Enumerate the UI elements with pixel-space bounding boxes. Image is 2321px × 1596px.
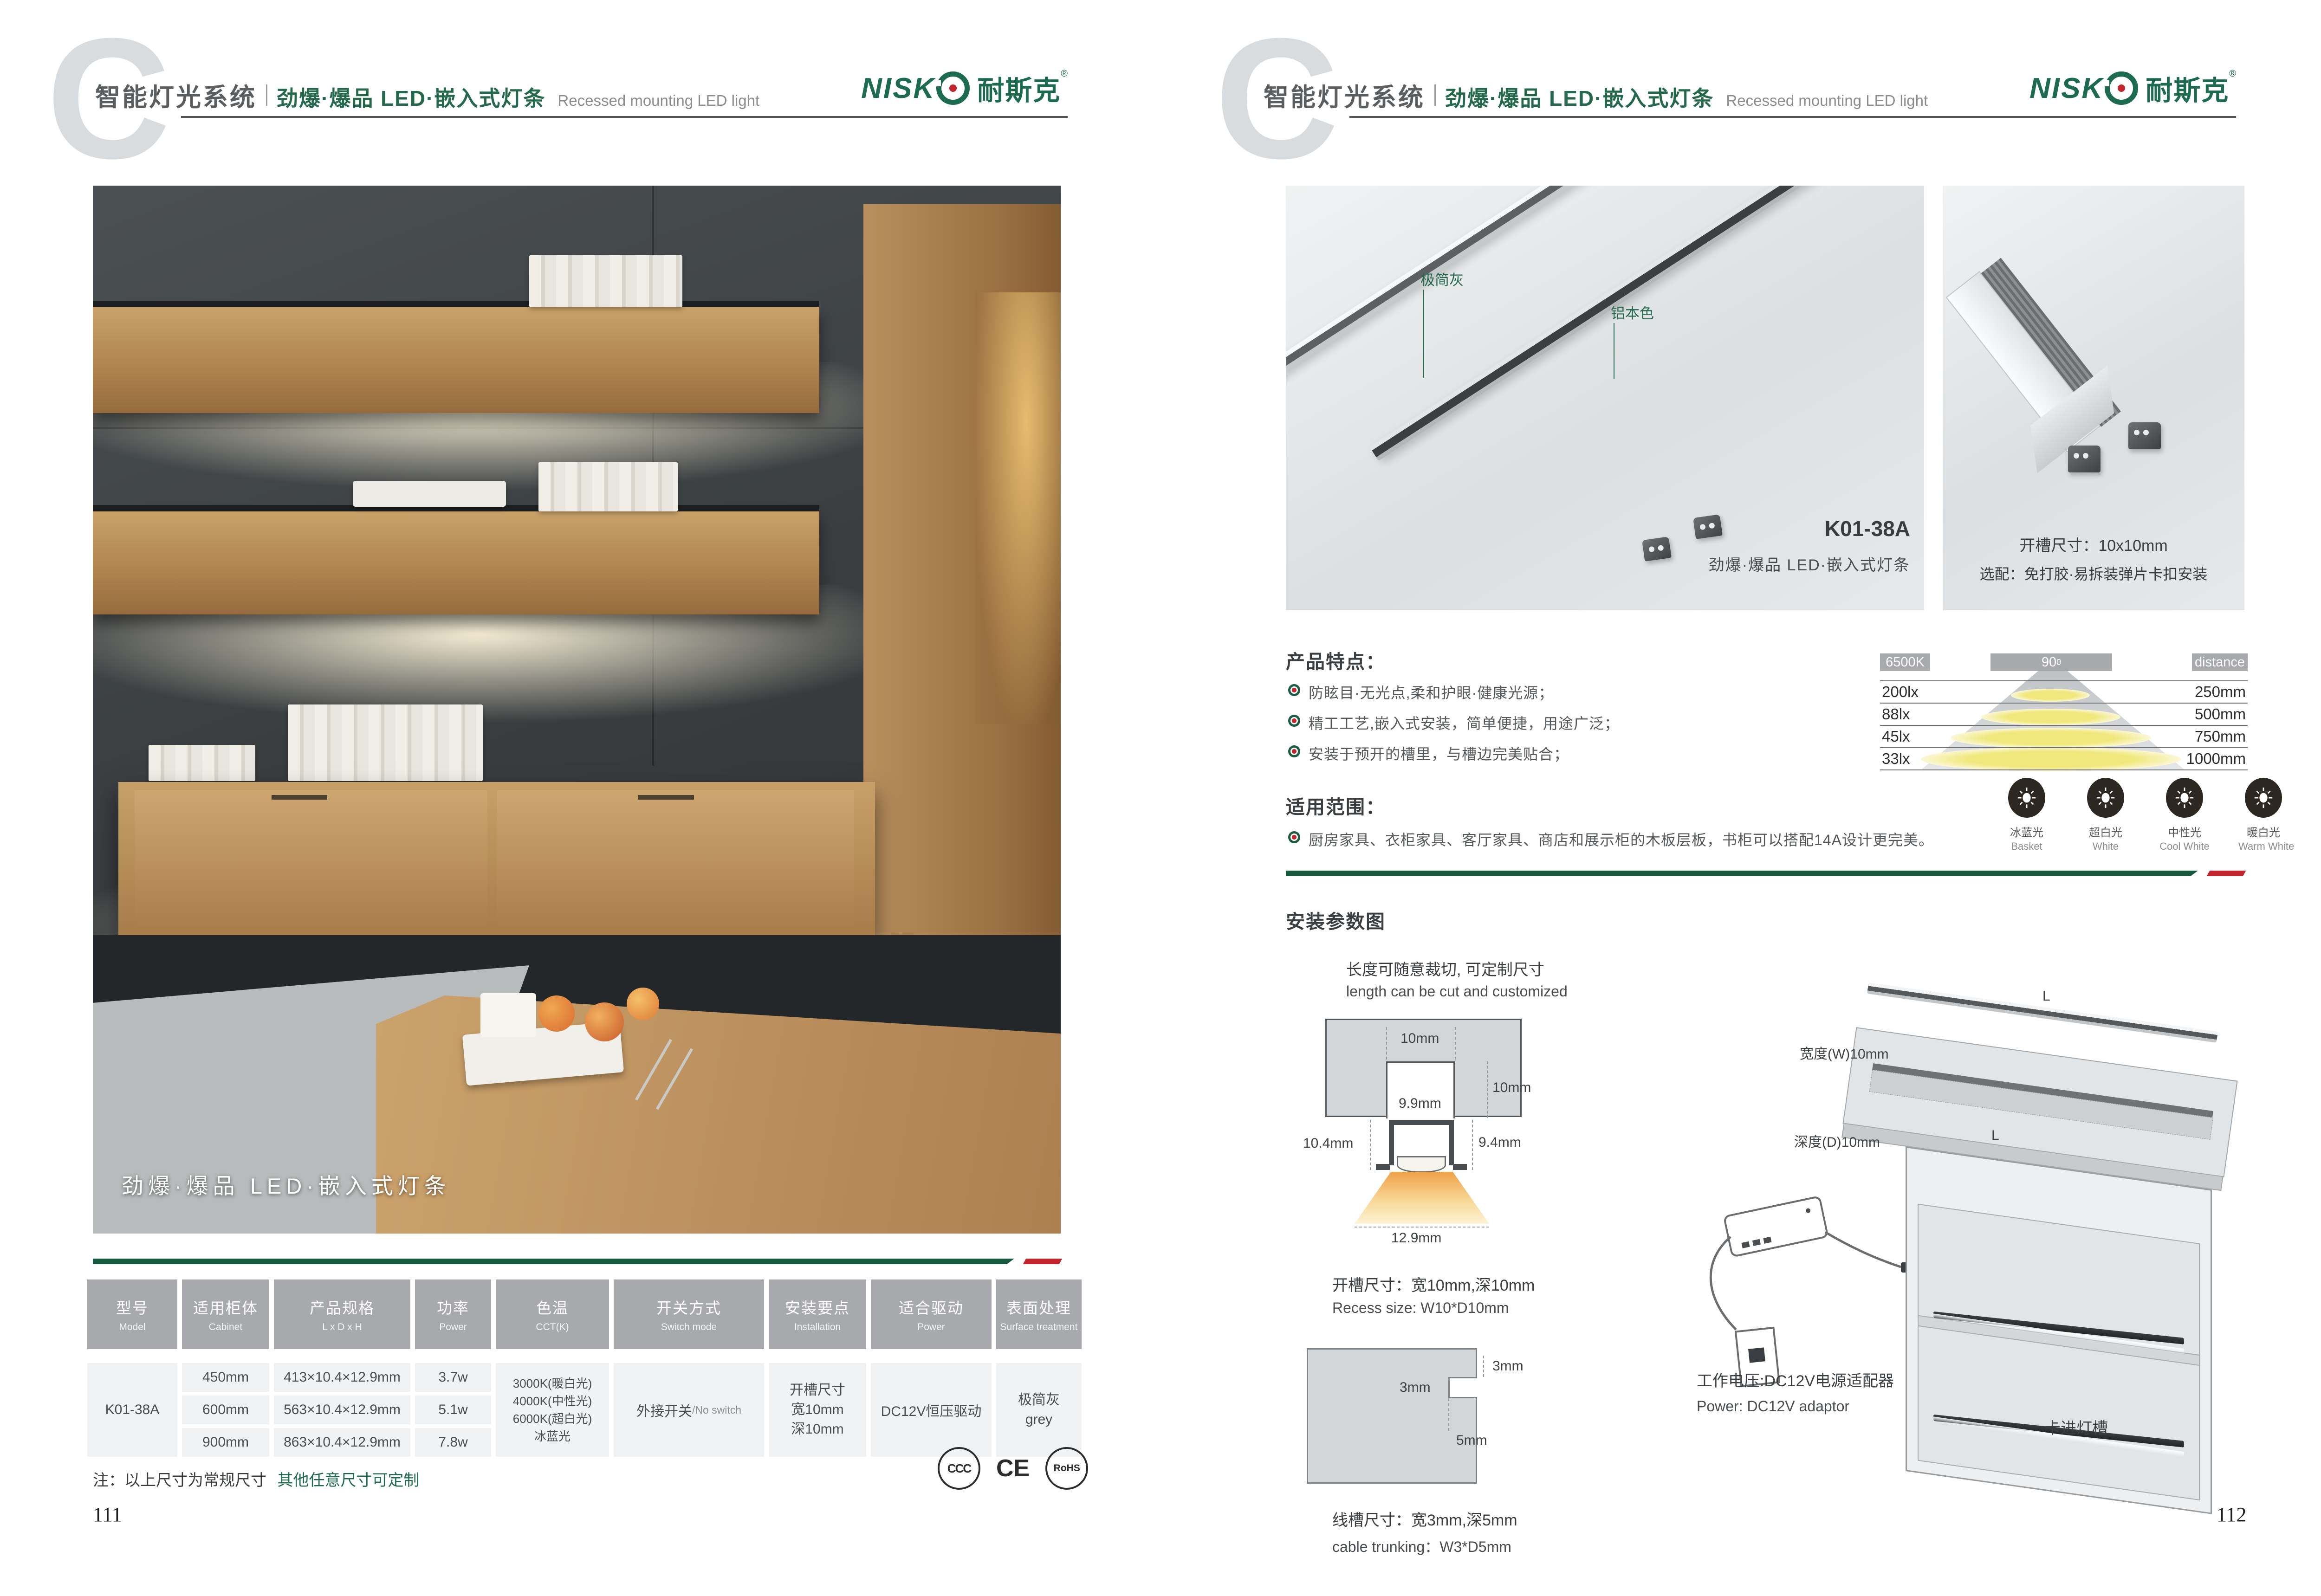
surface-cell: 极简灰 grey	[996, 1363, 1082, 1457]
table-cell: 3.7w	[415, 1363, 491, 1392]
series-title-en: Recessed mounting LED light	[558, 92, 759, 110]
header-en: CCT(K)	[496, 1322, 609, 1333]
title-separator	[266, 84, 267, 106]
col-header: 表面处理Surface treatment	[996, 1279, 1082, 1349]
note-custom: 其他任意尺寸可定制	[277, 1472, 419, 1489]
table-cell: 563×10.4×12.9mm	[274, 1396, 410, 1424]
header-en: Power	[871, 1322, 992, 1333]
col-header: 适用柜体Cabinet	[182, 1279, 269, 1349]
profile-flange	[1453, 1164, 1467, 1170]
photo-caption: 劲爆·爆品 LED·嵌入式灯条	[122, 1168, 451, 1200]
model-caption: 劲爆·爆品 LED·嵌入式灯条	[1709, 552, 1910, 575]
cut-note-zh: 长度可随意裁切, 可定制尺寸	[1346, 957, 1544, 980]
system-title: 智能灯光系统	[1264, 77, 1425, 113]
cct-cell: 3000K(暖白光) 4000K(中性光) 6000K(超白光) 冰蓝光	[496, 1363, 609, 1457]
label-leader-line	[1614, 323, 1614, 379]
col-header: 色温CCT(K)	[496, 1279, 609, 1349]
note-standard: 注：以上尺寸为常规尺寸	[93, 1472, 266, 1489]
distance-value: 1000mm	[2186, 750, 2246, 768]
drawer	[135, 790, 487, 927]
dim-height-left: 10.4mm	[1303, 1136, 1353, 1151]
install-cell: 开槽尺寸 宽10mm 深10mm	[769, 1363, 866, 1457]
recess-size-en: Recess size: W10*D10mm	[1332, 1299, 1509, 1317]
dim-guide	[1483, 1356, 1484, 1377]
driver-cell: DC12V恒压驱动	[871, 1363, 992, 1457]
brand-logo-chinese: 耐斯克	[2146, 69, 2229, 108]
col-switch: 开关方式Switch mode 外接开关/No switch	[614, 1279, 764, 1457]
header-zh: 开关方式	[614, 1296, 764, 1318]
drawer-handle	[638, 795, 694, 800]
color-temp-chip: 暖白光 Warm White	[2238, 778, 2289, 853]
feature-text: 精工工艺,嵌入式安装，简单便捷，用途广泛；	[1309, 712, 1620, 733]
drawer-handle	[272, 795, 327, 800]
light-pool	[1981, 709, 2120, 725]
col-cct: 色温CCT(K) 3000K(暖白光) 4000K(中性光) 6000K(超白光…	[496, 1279, 609, 1457]
dim-guide	[1355, 1227, 1489, 1228]
table-cell: 863×10.4×12.9mm	[274, 1428, 410, 1457]
header-zh: 色温	[496, 1296, 609, 1318]
label-leader-line	[1423, 290, 1424, 378]
features-title: 产品特点：	[1286, 646, 1386, 674]
cabinet-iso	[1906, 1146, 2230, 1572]
panel-block	[1307, 1348, 1477, 1484]
header-zh: 型号	[87, 1296, 177, 1318]
product-photo-main: 极简灰 铝本色 K01-38A 劲爆·爆品 LED·嵌入式灯条	[1286, 186, 1924, 610]
distance-badge: distance	[2192, 653, 2248, 671]
lifestyle-photo: 劲爆·爆品 LED·嵌入式灯条	[93, 186, 1061, 1234]
cct-badge: 6500K	[1880, 653, 1930, 671]
header-en: Power	[415, 1322, 491, 1333]
dim-strip-length: L	[2042, 989, 2050, 1004]
color-temp-zh: 中性光	[2159, 823, 2210, 840]
dim-slot-width: 10mm	[1400, 1031, 1439, 1047]
rohs-icon: RoHS	[1045, 1447, 1088, 1490]
divider-green	[1286, 871, 2198, 876]
lux-value: 45lx	[1882, 728, 1910, 745]
peach	[538, 995, 575, 1032]
dim-guide	[1448, 1398, 1449, 1431]
peach	[627, 988, 659, 1020]
books	[538, 462, 678, 511]
dim-bottom-width: 12.9mm	[1391, 1230, 1441, 1246]
col-cabinet: 适用柜体Cabinet 450mm 600mm 900mm	[182, 1279, 269, 1457]
header-en: Model	[87, 1322, 177, 1333]
sun-icon	[2245, 778, 2282, 818]
header-en: Cabinet	[182, 1322, 269, 1333]
section-divider	[93, 1259, 1061, 1264]
col-spec: 产品规格L x D x H 413×10.4×12.9mm 563×10.4×1…	[274, 1279, 410, 1457]
certifications: CCC CE RoHS	[938, 1447, 1088, 1490]
col-header: 开关方式Switch mode	[614, 1279, 764, 1349]
profile-section	[1389, 1120, 1454, 1165]
table-cell: 7.8w	[415, 1428, 491, 1457]
trunking-en: cable trunking：W3*D5mm	[1332, 1535, 1511, 1557]
page-header: 智能灯光系统 劲爆·爆品 LED·嵌入式灯条 Recessed mounting…	[1264, 77, 1928, 113]
chart-gridline	[1880, 680, 2248, 681]
feature-text: 防眩目·无光点,柔和护眼·健康光源；	[1309, 681, 1554, 703]
dim-height-right: 9.4mm	[1478, 1135, 1521, 1150]
feature-text: 安装于预开的槽里，与槽边完美贴合；	[1309, 743, 1569, 764]
dim-groove-depth: 深度(D)10mm	[1794, 1131, 1880, 1151]
recess-size-zh: 开槽尺寸：宽10mm,深10mm	[1332, 1273, 1535, 1295]
scope-item: 厨房家具、衣柜家具、客厅家具、商店和展示柜的木板层板，书柜可以搭配14A设计更完…	[1288, 828, 2147, 850]
trunking-notch	[1448, 1377, 1477, 1398]
mounting-clip	[1693, 514, 1723, 539]
scope-title: 适用范围：	[1286, 791, 1386, 819]
distance-value: 250mm	[2195, 683, 2246, 701]
cabinet-glow	[975, 292, 1061, 724]
feature-item: 防眩目·无光点,柔和护眼·健康光源；	[1288, 681, 1845, 703]
mounting-clip	[2128, 422, 2161, 449]
color-temp-zh: 暖白光	[2238, 823, 2289, 840]
finish-label-aluminium: 铝本色	[1611, 302, 1654, 323]
led-bar-grey	[1286, 186, 1652, 387]
distance-value: 500mm	[2195, 705, 2246, 723]
brand-logo: NISK 耐斯克 ®	[2029, 69, 2236, 108]
dim-guide	[1370, 1120, 1371, 1170]
mounting-clip	[1642, 536, 1672, 562]
ccc-icon: CCC	[938, 1447, 980, 1490]
brand-logo-latin: NISK	[2029, 72, 2104, 105]
header-zh: 适合驱动	[871, 1296, 992, 1318]
bullet-target-icon	[1288, 684, 1300, 696]
divider-green	[93, 1259, 1014, 1264]
table-cell: 413×10.4×12.9mm	[274, 1363, 410, 1392]
wall-shelf	[93, 511, 819, 614]
cross-section-diagram: 10mm 10mm 9.9mm 10.4mm 9.4mm 12.9mm	[1325, 1019, 1522, 1241]
col-model: 型号Model K01-38A	[87, 1279, 177, 1457]
product-photo-detail: 开槽尺寸：10x10mm 选配：免打胶·易拆装弹片卡扣安装	[1943, 186, 2244, 610]
left-page: C 智能灯光系统 劲爆·爆品 LED·嵌入式灯条 Recessed mounti…	[0, 0, 1168, 1596]
divider-red	[2207, 871, 2246, 876]
distance-value: 750mm	[2195, 728, 2246, 745]
tray	[353, 481, 506, 507]
header-en: Surface treatment	[996, 1322, 1082, 1333]
table-cell: 5.1w	[415, 1396, 491, 1424]
bullet-target-icon	[1288, 831, 1300, 843]
bullet-target-icon	[1288, 715, 1300, 727]
ce-icon: CE	[996, 1454, 1030, 1482]
page-number: 112	[2217, 1503, 2246, 1526]
feature-item: 精工工艺,嵌入式安装，简单便捷，用途广泛；	[1288, 712, 1845, 733]
lux-value: 88lx	[1882, 705, 1910, 723]
peach	[585, 1002, 624, 1041]
feature-item: 安装于预开的槽里，与槽边完美贴合；	[1288, 743, 1845, 764]
cable-trunking-diagram: 3mm 3mm 5mm	[1307, 1348, 1477, 1484]
finish-label-grey: 极简灰	[1420, 268, 1464, 289]
header-zh: 表面处理	[996, 1296, 1082, 1318]
light-pool	[1951, 728, 2151, 748]
lux-value: 200lx	[1882, 683, 1919, 701]
col-power: 功率Power 3.7w 5.1w 7.8w	[415, 1279, 491, 1457]
power-voltage-zh: 工作电压:DC12V电源适配器	[1697, 1368, 1894, 1391]
series-title-en: Recessed mounting LED light	[1726, 92, 1928, 110]
cut-note-en: length can be cut and customized	[1346, 983, 1568, 1000]
chart-gridline	[1880, 769, 2248, 770]
switch-cell: 外接开关/No switch	[614, 1363, 764, 1457]
clip-in-label: 卡进灯槽	[2045, 1415, 2108, 1438]
catalog-spread: { "colors": { "brand_green": "#1c6b4e", …	[0, 0, 2321, 1596]
light-distribution-chart: 6500K 900 distance 200lx 88lx 45lx 33lx …	[1880, 653, 2248, 774]
light-cone	[1355, 1172, 1489, 1224]
col-driver: 适合驱动Power DC12V恒压驱动	[871, 1279, 992, 1457]
header-zh: 功率	[415, 1296, 491, 1318]
bullet-target-icon	[1288, 745, 1300, 757]
scope-text: 厨房家具、衣柜家具、客厅家具、商店和展示柜的木板层板，书柜可以搭配14A设计更完…	[1309, 828, 1934, 850]
led-bar-aluminium	[1369, 186, 1822, 461]
recess-size-caption: 开槽尺寸：10x10mm	[1943, 533, 2244, 556]
col-header: 产品规格L x D x H	[274, 1279, 410, 1349]
install-title: 安装参数图	[1286, 906, 1386, 934]
dim-guide	[1455, 1027, 1456, 1060]
dim-slot-depth: 10mm	[1492, 1080, 1531, 1096]
table-note: 注：以上尺寸为常规尺寸 其他任意尺寸可定制	[93, 1467, 419, 1490]
divider-red	[1023, 1259, 1062, 1264]
profile-3d	[1946, 254, 2121, 451]
sun-icon	[2087, 778, 2124, 818]
dim-notch-c: 5mm	[1456, 1433, 1487, 1448]
title-separator	[1434, 84, 1436, 106]
right-page: C 智能灯光系统 劲爆·爆品 LED·嵌入式灯条 Recessed mounti…	[1168, 0, 2321, 1596]
chart-gridline	[1880, 747, 2248, 748]
page-number: 111	[93, 1503, 122, 1526]
header-rule	[181, 116, 1068, 118]
page-header: 智能灯光系统 劲爆·爆品 LED·嵌入式灯条 Recessed mounting…	[95, 77, 759, 113]
col-header: 型号Model	[87, 1279, 177, 1349]
sideboard	[118, 782, 875, 935]
sun-icon	[2008, 778, 2045, 818]
model-cell: K01-38A	[87, 1363, 177, 1457]
dim-profile-width: 9.9mm	[1399, 1096, 1441, 1111]
wall-shelf	[93, 307, 819, 413]
col-header: 适合驱动Power	[871, 1279, 992, 1349]
series-title: 劲爆·爆品 LED·嵌入式灯条	[277, 82, 545, 112]
napkin-stack	[480, 993, 536, 1037]
col-install: 安装要点Installation 开槽尺寸 宽10mm 深10mm	[769, 1279, 866, 1457]
header-zh: 适用柜体	[182, 1296, 269, 1318]
diffuser-lens	[1397, 1156, 1446, 1173]
table-cell: 450mm	[182, 1363, 269, 1392]
table-cell: 600mm	[182, 1396, 269, 1424]
series-title: 劲爆·爆品 LED·嵌入式灯条	[1445, 82, 1714, 112]
color-temp-en: Cool White	[2159, 840, 2210, 853]
color-temp-chip: 中性光 Cool White	[2159, 778, 2210, 853]
books	[529, 255, 682, 307]
profile-flange	[1376, 1164, 1390, 1170]
table-cell: 900mm	[182, 1428, 269, 1457]
brand-logo-chinese: 耐斯克	[977, 69, 1061, 108]
dim-guide	[1487, 1061, 1488, 1118]
section-divider	[1286, 871, 2244, 876]
registered-mark: ®	[2229, 69, 2236, 79]
angle-badge: 900	[1990, 653, 2112, 671]
books	[149, 745, 255, 781]
mounting-clip	[2068, 446, 2101, 472]
chart-gridline	[1880, 725, 2248, 726]
brand-logo-o-icon	[936, 71, 970, 105]
dim-notch-a: 3mm	[1492, 1358, 1524, 1374]
sun-icon	[2166, 778, 2203, 818]
trunking-zh: 线槽尺寸：宽3mm,深5mm	[1332, 1507, 1517, 1530]
lux-value: 33lx	[1882, 750, 1910, 768]
header-en: Switch mode	[614, 1322, 764, 1333]
power-voltage-en: Power: DC12V adaptor	[1697, 1398, 1849, 1415]
books	[288, 704, 483, 781]
header-rule	[1349, 116, 2236, 118]
col-header: 安装要点Installation	[769, 1279, 866, 1349]
dim-groove-width: 宽度(W)10mm	[1800, 1042, 1889, 1063]
option-caption: 选配：免打胶·易拆装弹片卡扣安装	[1943, 562, 2244, 584]
system-title: 智能灯光系统	[95, 77, 257, 113]
light-pool	[1921, 747, 2181, 771]
header-zh: 安装要点	[769, 1296, 866, 1318]
dim-notch-b: 3mm	[1400, 1380, 1431, 1396]
brand-logo: NISK 耐斯克 ®	[861, 69, 1068, 108]
brand-logo-o-icon	[2105, 71, 2138, 105]
brand-logo-latin: NISK	[861, 72, 935, 105]
registered-mark: ®	[1061, 69, 1068, 79]
header-en: Installation	[769, 1322, 866, 1333]
dim-guide	[1386, 1027, 1387, 1060]
model-code: K01-38A	[1825, 516, 1910, 541]
header-zh: 产品规格	[274, 1296, 410, 1318]
cabinet-diagram: 卡进灯槽	[1892, 1137, 2249, 1555]
col-header: 功率Power	[415, 1279, 491, 1349]
coffee-table	[376, 995, 1061, 1234]
light-pool	[2011, 689, 2090, 702]
color-temp-en: Warm White	[2238, 840, 2289, 853]
spec-table: 型号Model K01-38A 适用柜体Cabinet 450mm 600mm …	[87, 1279, 1083, 1457]
dim-guide	[1472, 1120, 1473, 1170]
drawer	[497, 790, 854, 927]
chart-gridline	[1880, 703, 2248, 704]
header-en: L x D x H	[274, 1322, 410, 1333]
col-surface: 表面处理Surface treatment 极简灰 grey	[996, 1279, 1082, 1457]
